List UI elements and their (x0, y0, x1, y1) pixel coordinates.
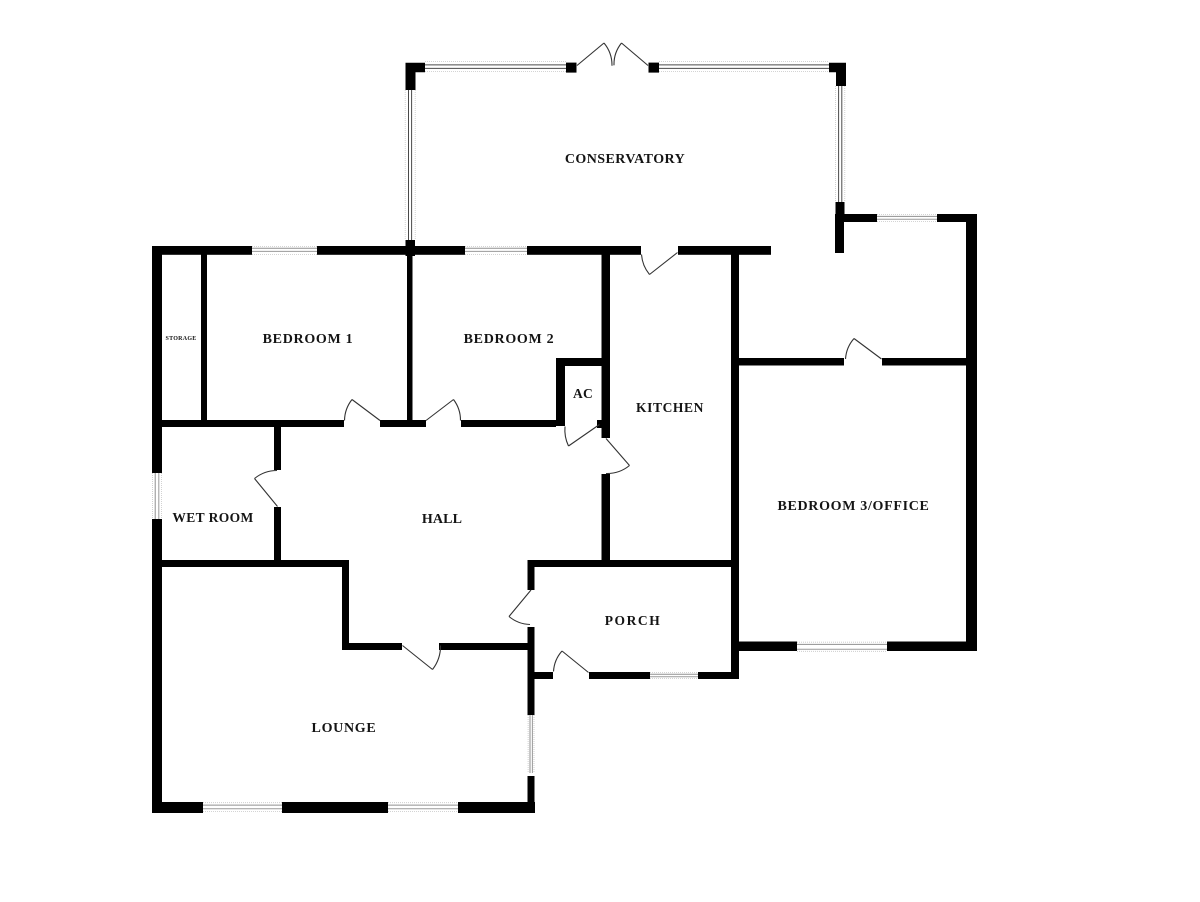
svg-text:PORCH: PORCH (605, 613, 662, 628)
svg-text:HALL: HALL (422, 512, 462, 527)
svg-text:KITCHEN: KITCHEN (636, 400, 704, 415)
svg-text:BEDROOM 3/OFFICE: BEDROOM 3/OFFICE (777, 499, 929, 514)
svg-text:AC: AC (573, 386, 593, 401)
svg-text:CONSERVATORY: CONSERVATORY (565, 152, 685, 167)
svg-text:BEDROOM 1: BEDROOM 1 (263, 332, 354, 347)
svg-text:WET ROOM: WET ROOM (172, 510, 253, 525)
svg-text:STORAGE: STORAGE (166, 336, 197, 342)
svg-text:LOUNGE: LOUNGE (312, 721, 377, 736)
svg-text:BEDROOM 2: BEDROOM 2 (464, 332, 555, 347)
